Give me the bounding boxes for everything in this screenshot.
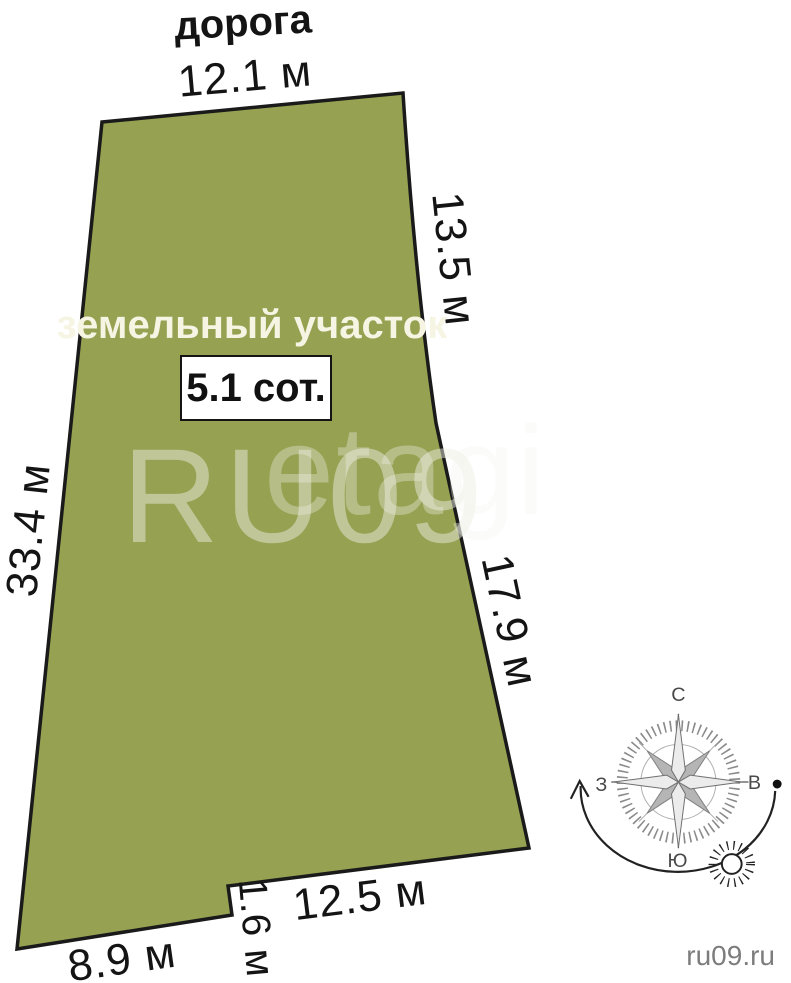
plot-area-value: 5.1 сот. <box>186 368 326 408</box>
dimension-notch: 1.6 м <box>232 877 280 979</box>
compass-label-east: В <box>748 772 761 794</box>
compass-label-north: С <box>671 684 685 706</box>
compass-label-west: З <box>595 774 607 796</box>
plot-area-badge: 5.1 сот. <box>180 355 332 421</box>
compass-main-points <box>613 715 741 847</box>
road-label: дорога <box>173 0 313 47</box>
plot-name-label: земельный участок <box>57 305 447 345</box>
dimension-top: 12.1 м <box>176 49 313 105</box>
sunrise-dot <box>773 780 782 789</box>
compass-rose: С В Ю З <box>554 672 791 897</box>
land-plot-diagram: RU09 etagi дорога 12.1 м 13.5 м 33.4 м 1… <box>0 0 791 983</box>
compass-label-south: Ю <box>667 850 687 872</box>
site-credit: ru09.ru <box>686 940 775 972</box>
